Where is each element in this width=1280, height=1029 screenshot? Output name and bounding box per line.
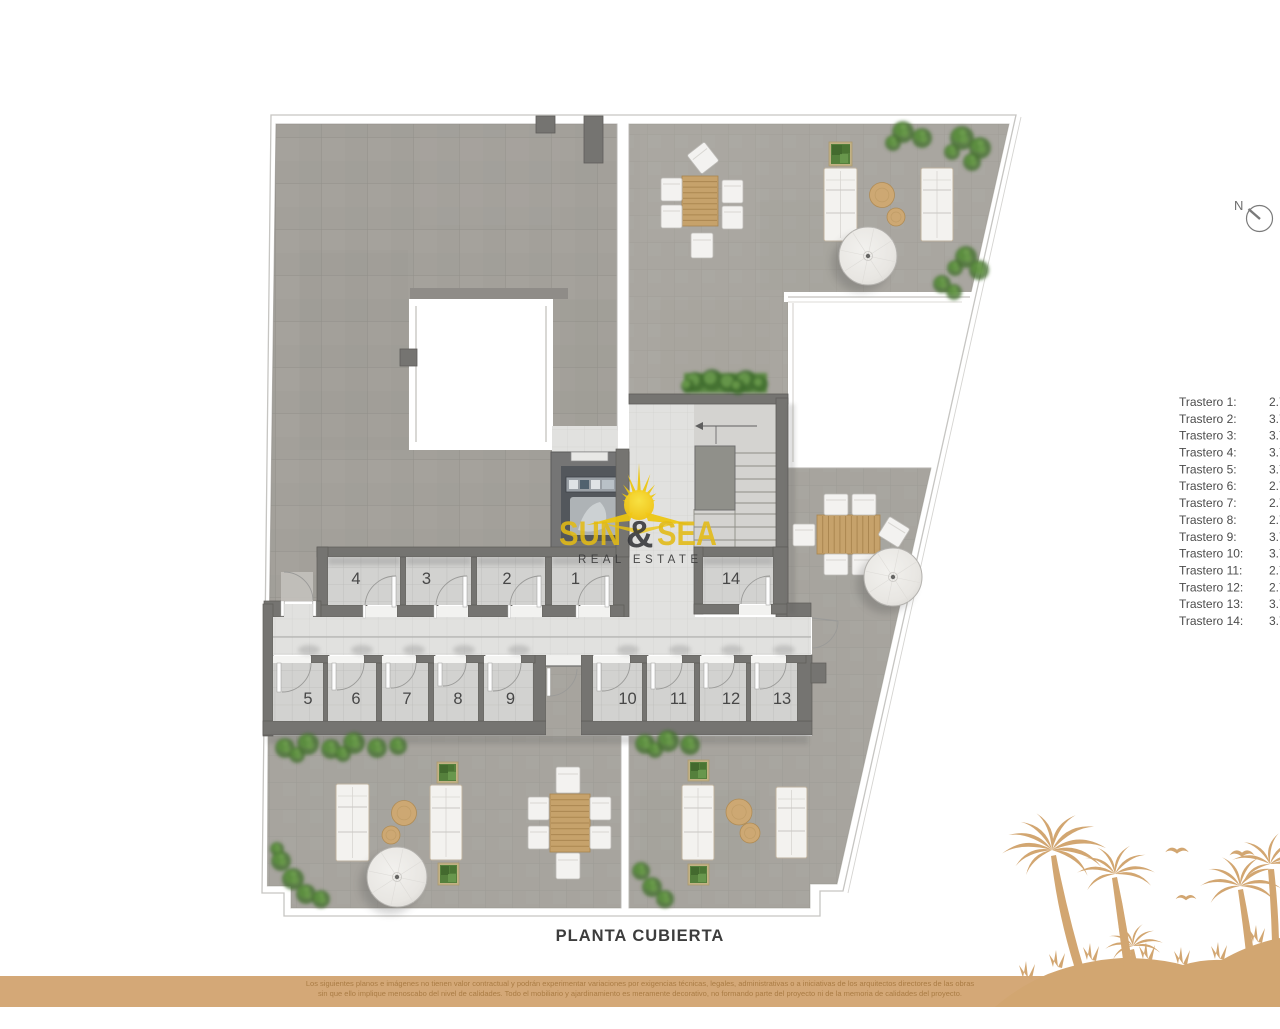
svg-text:Trastero 10:: Trastero 10: (1179, 547, 1243, 561)
svg-text:8: 8 (453, 690, 462, 708)
svg-text:9: 9 (506, 690, 515, 708)
svg-text:3.7: 3.7 (1269, 412, 1280, 426)
svg-text:7: 7 (402, 690, 411, 708)
svg-text:2.7: 2.7 (1269, 564, 1280, 578)
svg-text:SEA: SEA (657, 515, 717, 553)
svg-text:3.7: 3.7 (1269, 614, 1280, 628)
svg-text:2.7: 2.7 (1269, 479, 1280, 493)
svg-text:&: & (626, 514, 653, 556)
svg-text:Trastero 8:: Trastero 8: (1179, 513, 1237, 527)
svg-text:REAL ESTATE: REAL ESTATE (578, 554, 703, 566)
svg-text:PLANTA CUBIERTA: PLANTA CUBIERTA (556, 927, 725, 945)
svg-text:4: 4 (351, 570, 360, 588)
svg-text:Los siguientes planos e imágen: Los siguientes planos e imágenes no tien… (306, 979, 975, 988)
svg-text:Trastero 1:: Trastero 1: (1179, 395, 1237, 409)
svg-text:2.7: 2.7 (1269, 496, 1280, 510)
svg-text:3.7: 3.7 (1269, 597, 1280, 611)
svg-text:3: 3 (422, 570, 431, 588)
svg-text:Trastero 5:: Trastero 5: (1179, 462, 1237, 476)
svg-text:3.7: 3.7 (1269, 547, 1280, 561)
svg-text:13: 13 (773, 690, 791, 708)
svg-text:Trastero 4:: Trastero 4: (1179, 446, 1237, 460)
svg-text:2.7: 2.7 (1269, 513, 1280, 527)
svg-text:12: 12 (722, 690, 740, 708)
svg-text:3.7: 3.7 (1269, 446, 1280, 460)
svg-text:2: 2 (502, 570, 511, 588)
svg-text:1: 1 (571, 570, 580, 588)
svg-text:Trastero 14:: Trastero 14: (1179, 614, 1243, 628)
svg-text:2.7: 2.7 (1269, 395, 1280, 409)
svg-text:N: N (1234, 198, 1243, 213)
svg-text:Trastero 2:: Trastero 2: (1179, 412, 1237, 426)
svg-text:Trastero 13:: Trastero 13: (1179, 597, 1243, 611)
svg-text:Trastero 3:: Trastero 3: (1179, 429, 1237, 443)
svg-text:6: 6 (351, 690, 360, 708)
svg-text:Trastero 12:: Trastero 12: (1179, 580, 1243, 594)
svg-text:3.7: 3.7 (1269, 530, 1280, 544)
svg-text:sin que ello implique menoscab: sin que ello implique menoscabo del nive… (318, 989, 962, 998)
svg-text:11: 11 (670, 690, 687, 708)
svg-text:5: 5 (303, 690, 312, 708)
svg-text:3.7: 3.7 (1269, 462, 1280, 476)
svg-text:2.7: 2.7 (1269, 580, 1280, 594)
svg-text:3.7: 3.7 (1269, 429, 1280, 443)
svg-text:10: 10 (618, 690, 636, 708)
svg-text:14: 14 (722, 570, 740, 588)
svg-text:SUN: SUN (559, 515, 621, 553)
svg-text:Trastero 6:: Trastero 6: (1179, 479, 1237, 493)
svg-text:Trastero 7:: Trastero 7: (1179, 496, 1237, 510)
svg-text:Trastero 9:: Trastero 9: (1179, 530, 1237, 544)
svg-text:Trastero 11:: Trastero 11: (1179, 564, 1242, 578)
